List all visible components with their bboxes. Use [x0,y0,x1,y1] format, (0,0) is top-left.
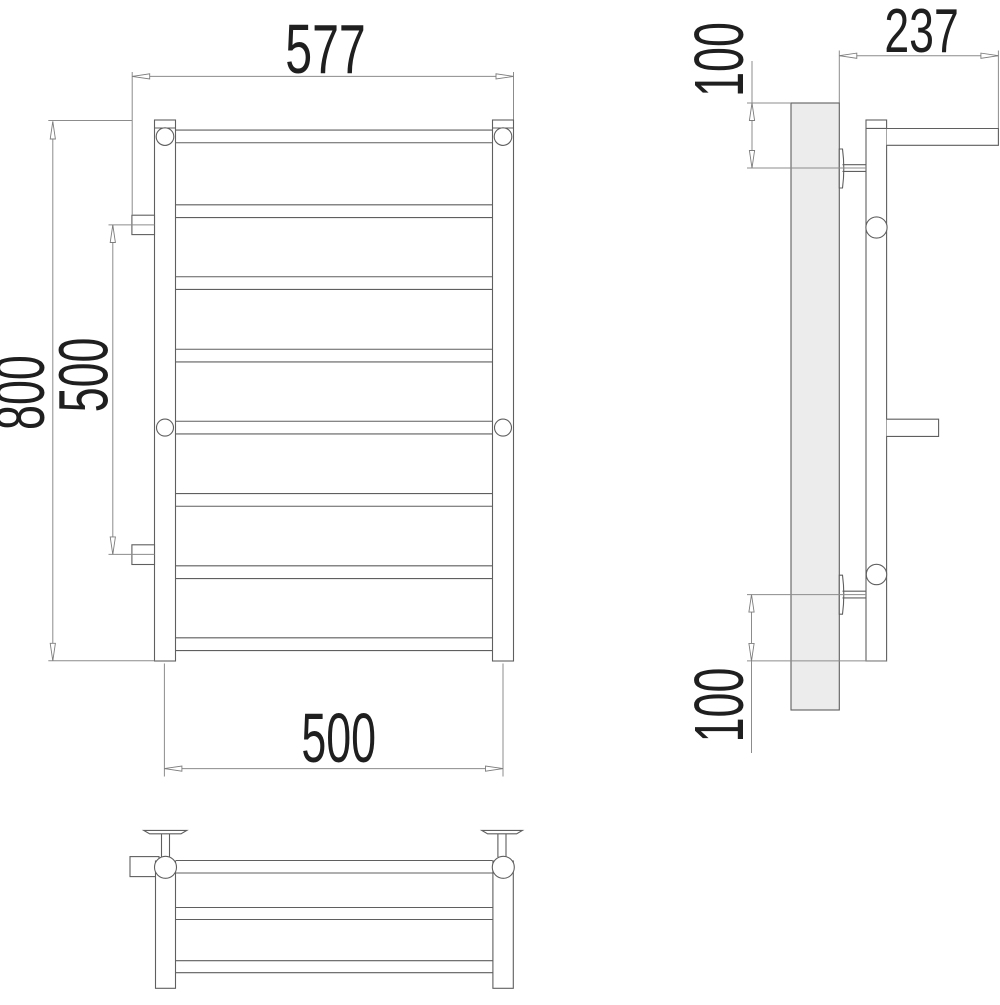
svg-text:500: 500 [46,338,123,413]
svg-text:577: 577 [285,10,366,88]
svg-text:100: 100 [681,668,758,743]
svg-text:237: 237 [884,0,958,66]
svg-text:100: 100 [681,22,758,97]
svg-text:500: 500 [301,700,376,777]
